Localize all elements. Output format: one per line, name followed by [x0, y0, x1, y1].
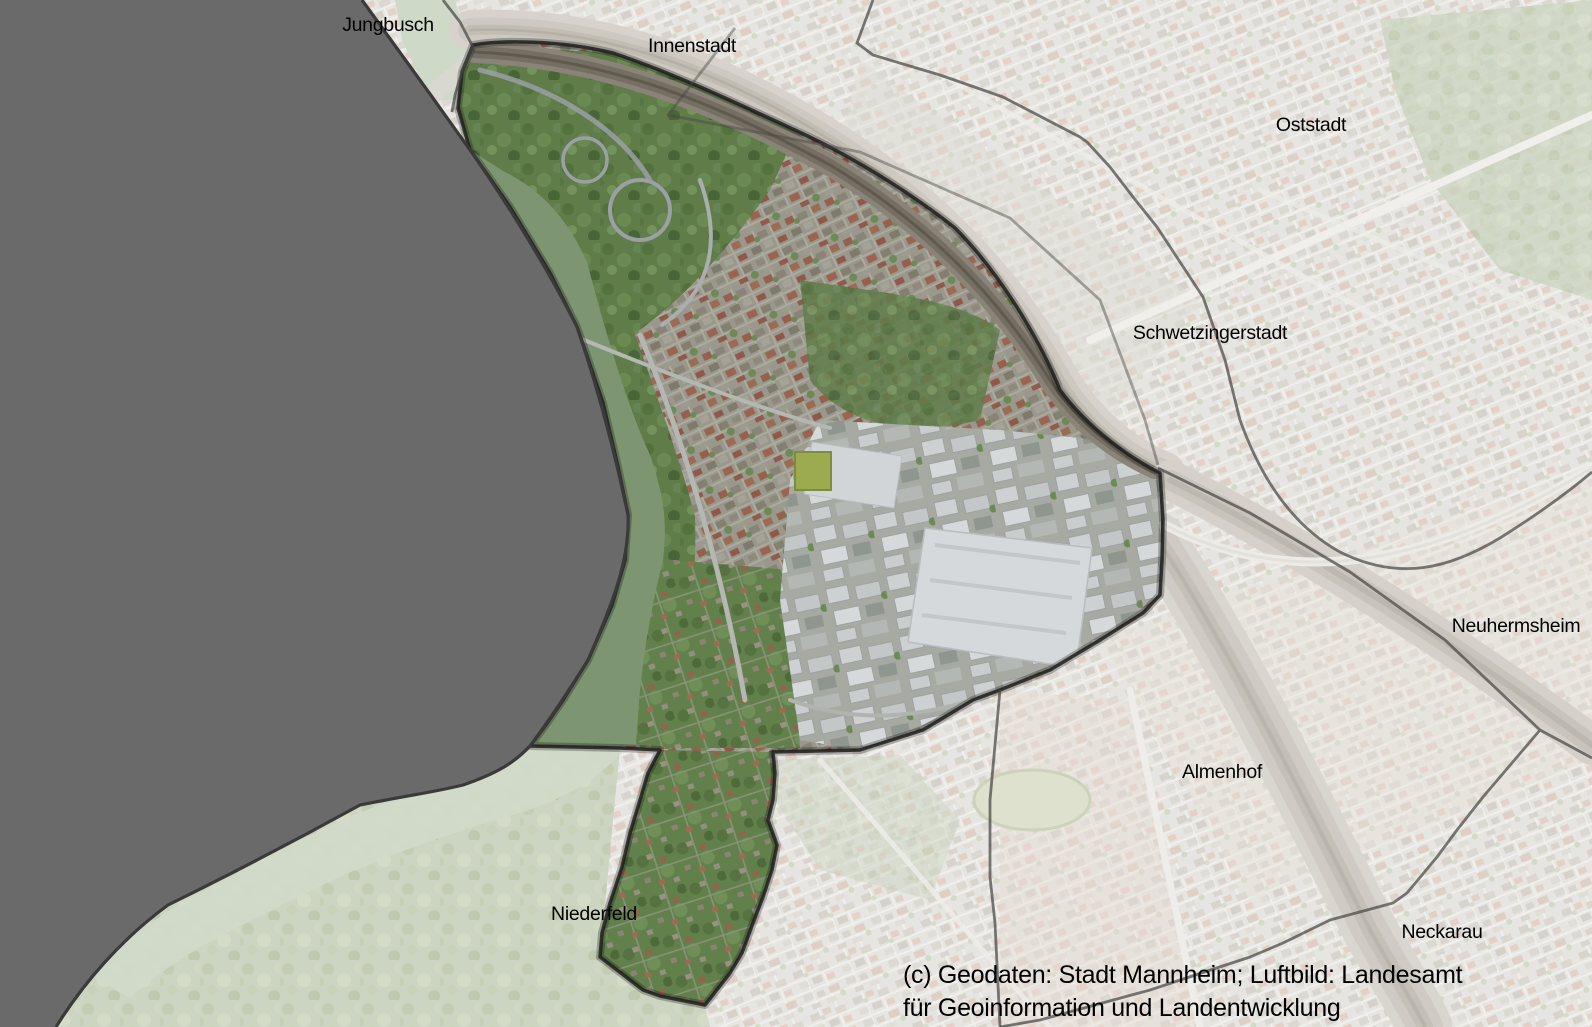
label-schwetzingerstadt: Schwetzingerstadt [1133, 322, 1288, 344]
label-almenhof: Almenhof [1182, 761, 1263, 783]
label-neuhermsheim: Neuhermsheim [1452, 615, 1581, 637]
label-neckarau: Neckarau [1401, 921, 1482, 943]
attribution-line-2: für Geoinformation und Landentwicklung [903, 994, 1341, 1022]
aerial-map-canvas: Jungbusch Innenstadt Oststadt Schwetzing… [0, 0, 1592, 1027]
label-niederfeld: Niederfeld [551, 903, 637, 925]
label-innenstadt: Innenstadt [648, 35, 737, 57]
label-jungbusch: Jungbusch [342, 14, 434, 36]
attribution-line-1: (c) Geodaten: Stadt Mannheim; Luftbild: … [903, 961, 1463, 989]
label-oststadt: Oststadt [1276, 114, 1347, 136]
map-stage: Jungbusch Innenstadt Oststadt Schwetzing… [0, 0, 1592, 1027]
park-square [795, 452, 831, 490]
